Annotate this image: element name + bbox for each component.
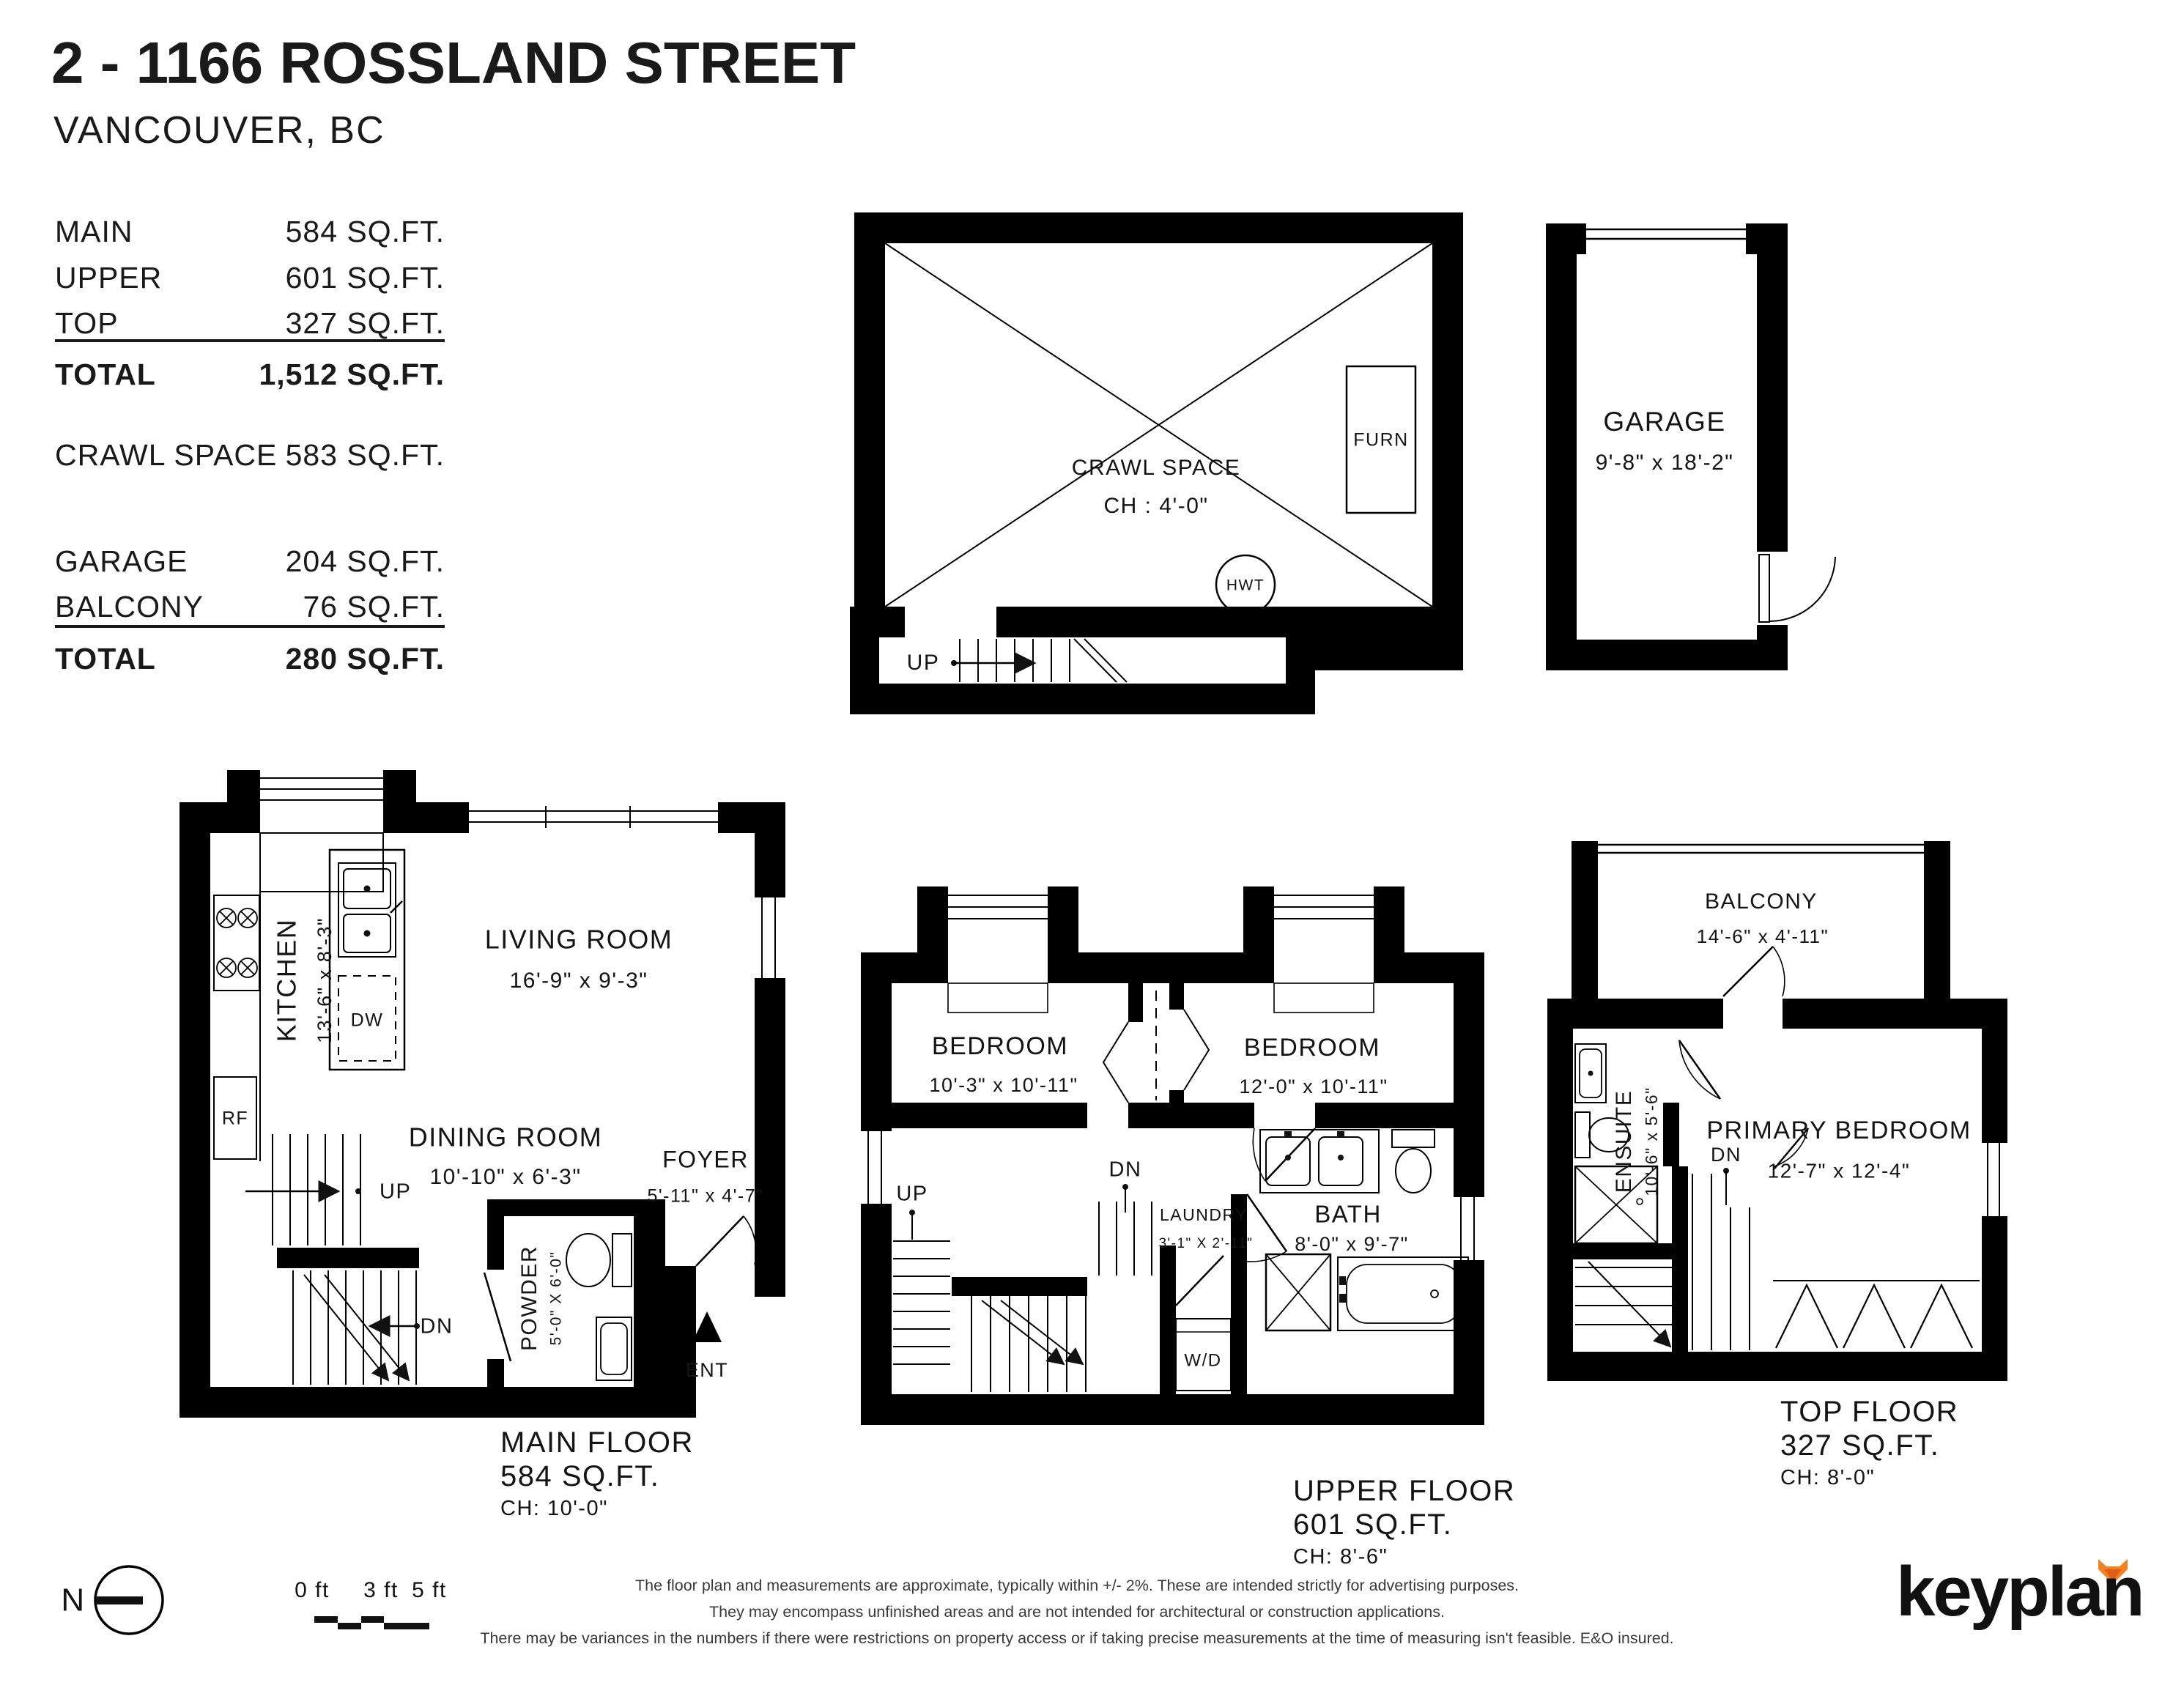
wall (1243, 886, 1274, 952)
stove-burners (217, 908, 257, 977)
kitchen-sink-unit (338, 863, 396, 957)
kitchen-island (330, 850, 404, 1070)
toilet-tank (1575, 1112, 1590, 1158)
toilet (1396, 1149, 1431, 1193)
ensuite-dims: 10'-6" x 5'-6" (1642, 1087, 1661, 1196)
sink (1319, 1137, 1363, 1185)
drain (1431, 1290, 1438, 1298)
room-label-garage: GARAGE (1603, 407, 1725, 437)
wall (1572, 841, 1598, 999)
bathtub (1338, 1257, 1468, 1330)
wall (1547, 1352, 2007, 1381)
room-label-dining: DINING ROOM (409, 1122, 603, 1152)
scale-label-0: 0 ft (295, 1578, 330, 1602)
wall (179, 833, 210, 1418)
window-sill (948, 983, 1048, 1013)
stair-opening (905, 607, 996, 637)
tap (1339, 1294, 1346, 1303)
floor-ch-upper: CH: 8'-6" (1293, 1545, 1388, 1569)
living-window (469, 806, 718, 828)
wall (1783, 999, 2007, 1029)
laundry-dims: 3'-1" X 2'-11" (1158, 1236, 1253, 1251)
wall (854, 212, 885, 637)
stairs-break (1001, 1300, 1083, 1364)
room-label-crawl: CRAWL SPACE (1072, 456, 1240, 480)
disclaimer-line-3: There may be variances in the numbers if… (469, 1625, 1685, 1651)
floor-ch-top: CH: 8'-0" (1780, 1466, 1875, 1489)
wall (1286, 607, 1315, 714)
scale-label-3: 3 ft (363, 1578, 399, 1602)
dn-label: DN (421, 1315, 454, 1339)
bedroom1-dims: 10'-3" x 10'-11" (929, 1074, 1078, 1096)
wall (755, 1266, 785, 1297)
wall (1547, 999, 1723, 1029)
foyer-dims: 5'-11" x 4'-7" (647, 1186, 763, 1207)
stairs-dn-treads (1099, 1202, 1152, 1276)
powder-dims: 5'-0" X 6'-0" (548, 1251, 565, 1346)
room-label-foyer: FOYER (662, 1146, 749, 1172)
wall (383, 770, 416, 833)
scale-seg (384, 1623, 429, 1629)
floor-area-top: 327 SQ.FT. (1780, 1429, 1939, 1462)
balcony-door-leaf (1723, 947, 1773, 996)
stairs-treads (971, 1296, 1086, 1392)
side-window-opening (755, 897, 785, 978)
scale-seg (361, 1616, 384, 1623)
stairs-break (1074, 639, 1127, 682)
room-label-powder: POWDER (517, 1245, 541, 1351)
wall (179, 1387, 696, 1418)
balcony-door-swing (1773, 947, 1785, 996)
wall (179, 802, 227, 833)
crawl-x-brace (885, 243, 1432, 607)
dining-dims: 10'-10" x 6'-3" (429, 1165, 581, 1189)
stairs-dn-treads (293, 1270, 416, 1385)
wall (487, 1199, 504, 1270)
wall (227, 770, 260, 833)
bedroom2-door-swing (1253, 1128, 1265, 1181)
scale-seg (314, 1616, 338, 1623)
wall (665, 1266, 696, 1297)
toilet-tank (612, 1234, 632, 1287)
crawl-ceiling-height: CH : 4'-0" (1103, 494, 1208, 518)
ensuite-door-leaf (1679, 1040, 1720, 1099)
furnace-label: FURN (1353, 430, 1408, 451)
living-dims: 16'-9" x 9'-3" (510, 969, 648, 993)
room-label-bedroom1: BEDROOM (932, 1032, 1068, 1060)
drain (1285, 1155, 1291, 1160)
wall (892, 1103, 1087, 1128)
room-label-living: LIVING ROOM (485, 925, 673, 955)
stair-divider (277, 1248, 419, 1268)
wall (1169, 983, 1184, 1010)
bathtub-inner (1347, 1265, 1461, 1323)
balcony-dims: 14'-6" x 4'-11" (1697, 925, 1829, 947)
bay-window (260, 778, 383, 800)
stairs-lower-treads (1575, 1267, 1672, 1325)
scale-bar: 0 ft 3 ft 5 ft (295, 1578, 447, 1629)
wall (1546, 640, 1788, 670)
upper-floor-plan: BEDROOM 10'-3" x 10'-11" BEDROOM 12'-0" … (861, 886, 1515, 1569)
wall (850, 684, 1315, 714)
floor-label-top: TOP FLOOR (1780, 1396, 1958, 1428)
bifold-door (1184, 1010, 1209, 1090)
toilet-tank (1392, 1130, 1435, 1147)
scale-seg (338, 1623, 361, 1629)
stairs-up-treads (273, 1134, 360, 1245)
room-label-ensuite: ENSUITE (1612, 1090, 1636, 1193)
room-label-laundry: LAUNDRY (1160, 1205, 1248, 1224)
wall (416, 802, 469, 833)
bifold-door (1103, 1022, 1128, 1103)
hwt-label: HWT (1226, 577, 1265, 594)
wall (854, 212, 1463, 243)
wall (1663, 1103, 1679, 1166)
entry-arrow (692, 1311, 722, 1342)
dn-label: DN (1109, 1158, 1142, 1182)
wall (1546, 223, 1577, 670)
wd-label: W/D (1184, 1350, 1221, 1370)
sink (1266, 1137, 1310, 1185)
floorplan-canvas: CRAWL SPACE CH : 4'-0" FURN HWT UP GARAG… (0, 0, 2184, 1688)
window-opening (1454, 1197, 1484, 1260)
compass: N (61, 1566, 163, 1634)
wall (1315, 1103, 1484, 1128)
faucet (1337, 1131, 1344, 1137)
wall (1169, 1090, 1184, 1103)
stairs-break (982, 1300, 1064, 1364)
disclaimer: The floor plan and measurements are appr… (469, 1572, 1685, 1651)
stairs-break (325, 1275, 409, 1380)
stairs-side-treads (893, 1241, 950, 1364)
balcony-rail (1598, 845, 1924, 853)
garage-dims: 9'-8" x 18'-2" (1596, 451, 1734, 475)
drain (1338, 1155, 1344, 1160)
garage-door (1586, 229, 1746, 239)
door-swing (1769, 557, 1835, 621)
wall (1374, 886, 1404, 952)
toilet (566, 1234, 610, 1287)
rf-label: RF (222, 1108, 248, 1129)
stairs-treads (1692, 1174, 1750, 1350)
window-opening (861, 1131, 892, 1204)
room-label-balcony: BALCONY (1705, 889, 1818, 914)
floor-label-main: MAIN FLOOR (500, 1426, 694, 1459)
wall (1547, 999, 1573, 1381)
disclaimer-line-2: They may encompass unfinished areas and … (469, 1599, 1685, 1625)
garage-plan: GARAGE 9'-8" x 18'-2" (1546, 223, 1835, 670)
top-floor-plan: BALCONY 14'-6" x 4'-11" ENSUITE 10'-6" x… (1547, 841, 2007, 1489)
wall (861, 1394, 1484, 1425)
dn-label: DN (1711, 1144, 1741, 1166)
wall (1128, 1103, 1184, 1128)
wall (1048, 886, 1078, 952)
scale-label-5: 5 ft (412, 1578, 447, 1602)
up-label: UP (380, 1180, 411, 1204)
room-label-bedroom2: BEDROOM (1244, 1034, 1380, 1062)
drain (1637, 1199, 1643, 1204)
wall (1432, 212, 1463, 637)
wall (1184, 1103, 1254, 1128)
crawl-space-plan: CRAWL SPACE CH : 4'-0" FURN HWT UP (850, 212, 1463, 714)
drain (364, 886, 371, 892)
wall (634, 1199, 665, 1387)
floor-label-upper: UPPER FLOOR (1293, 1475, 1515, 1507)
stairs-break (1588, 1262, 1670, 1347)
stair-dot (355, 1188, 361, 1194)
shower-x (1266, 1254, 1330, 1330)
laundry-door-leaf (1176, 1256, 1224, 1306)
primary-dims: 12'-7" x 12'-4" (1768, 1159, 1911, 1182)
wall (1315, 637, 1463, 670)
drain (1588, 1071, 1593, 1076)
wall (1160, 1245, 1176, 1394)
faucet (1284, 1131, 1292, 1137)
powder-door-leaf (484, 1273, 511, 1361)
brand-logo: keyplan (1896, 1552, 2143, 1632)
wall (917, 886, 948, 952)
dw-label: DW (351, 1010, 384, 1031)
compass-needle (96, 1596, 143, 1604)
room-label-bath: BATH (1314, 1201, 1382, 1228)
drain (364, 930, 371, 937)
wall (1454, 952, 1484, 1425)
wall (1757, 223, 1788, 552)
bay-windows (948, 895, 1374, 919)
up-label: UP (907, 651, 940, 675)
floor-ch-main: CH: 10'-0" (500, 1497, 608, 1520)
room-label-kitchen: KITCHEN (272, 919, 302, 1043)
wall (1924, 841, 1950, 999)
wall (1048, 952, 1274, 983)
window-sill (1274, 983, 1374, 1013)
wall (487, 1359, 504, 1387)
door-leaf (1759, 555, 1769, 622)
entry-door-swing (744, 1216, 756, 1265)
main-floor-plan: KITCHEN 13'-6" x 8'-3" LIVING ROOM 16'-9… (179, 770, 785, 1520)
wall (718, 802, 785, 833)
kitchen-dims: 13'-6" x 8'-3" (314, 917, 336, 1043)
wall (665, 1297, 696, 1418)
bedroom2-dims: 12'-0" x 10'-11" (1239, 1076, 1388, 1097)
tap (1339, 1276, 1346, 1285)
wall (1573, 1243, 1679, 1259)
north-label: N (61, 1582, 85, 1618)
bath-dims: 8'-0" x 9'-7" (1295, 1233, 1409, 1255)
up-label: UP (896, 1182, 928, 1206)
room-label-primary: PRIMARY BEDROOM (1706, 1117, 1971, 1144)
ent-label: ENT (686, 1359, 729, 1381)
stairs-treads (960, 639, 1070, 682)
stair-divider (952, 1277, 1087, 1296)
window-opening (1982, 1143, 2007, 1216)
floor-area-upper: 601 SQ.FT. (1293, 1509, 1452, 1541)
wall (1128, 983, 1143, 1022)
entry-door-leaf (696, 1216, 744, 1266)
floor-area-main: 584 SQ.FT. (500, 1460, 659, 1492)
closet-bifold-doors (1776, 1285, 1972, 1348)
powder-sink (601, 1323, 627, 1374)
disclaimer-line-1: The floor plan and measurements are appr… (469, 1572, 1685, 1599)
